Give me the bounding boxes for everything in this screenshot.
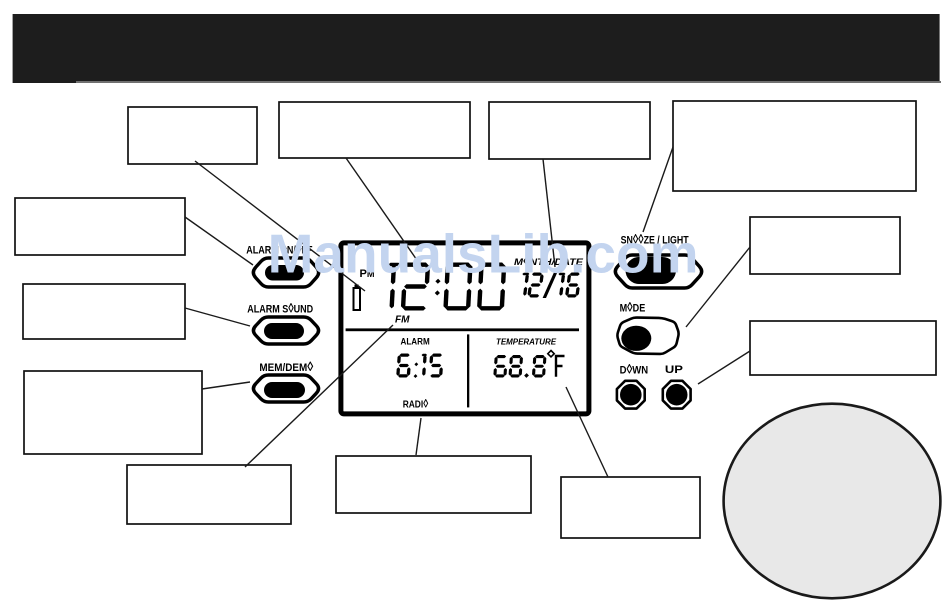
svg-text:M◊DE: M◊DE <box>620 300 646 315</box>
svg-text:MEM/DEM◊: MEM/DEM◊ <box>259 359 313 374</box>
svg-text:ManualsLib.com: ManualsLib.com <box>268 223 699 285</box>
svg-text:TEMPERATURE: TEMPERATURE <box>496 338 557 347</box>
svg-text:D◊WN: D◊WN <box>620 361 649 376</box>
svg-text:UP: UP <box>665 364 683 376</box>
svg-text:ALARM S◊UND: ALARM S◊UND <box>247 300 313 315</box>
svg-text:RADI◊: RADI◊ <box>403 397 429 411</box>
svg-text:FM: FM <box>395 315 410 326</box>
svg-text:ALARM: ALARM <box>401 337 430 348</box>
